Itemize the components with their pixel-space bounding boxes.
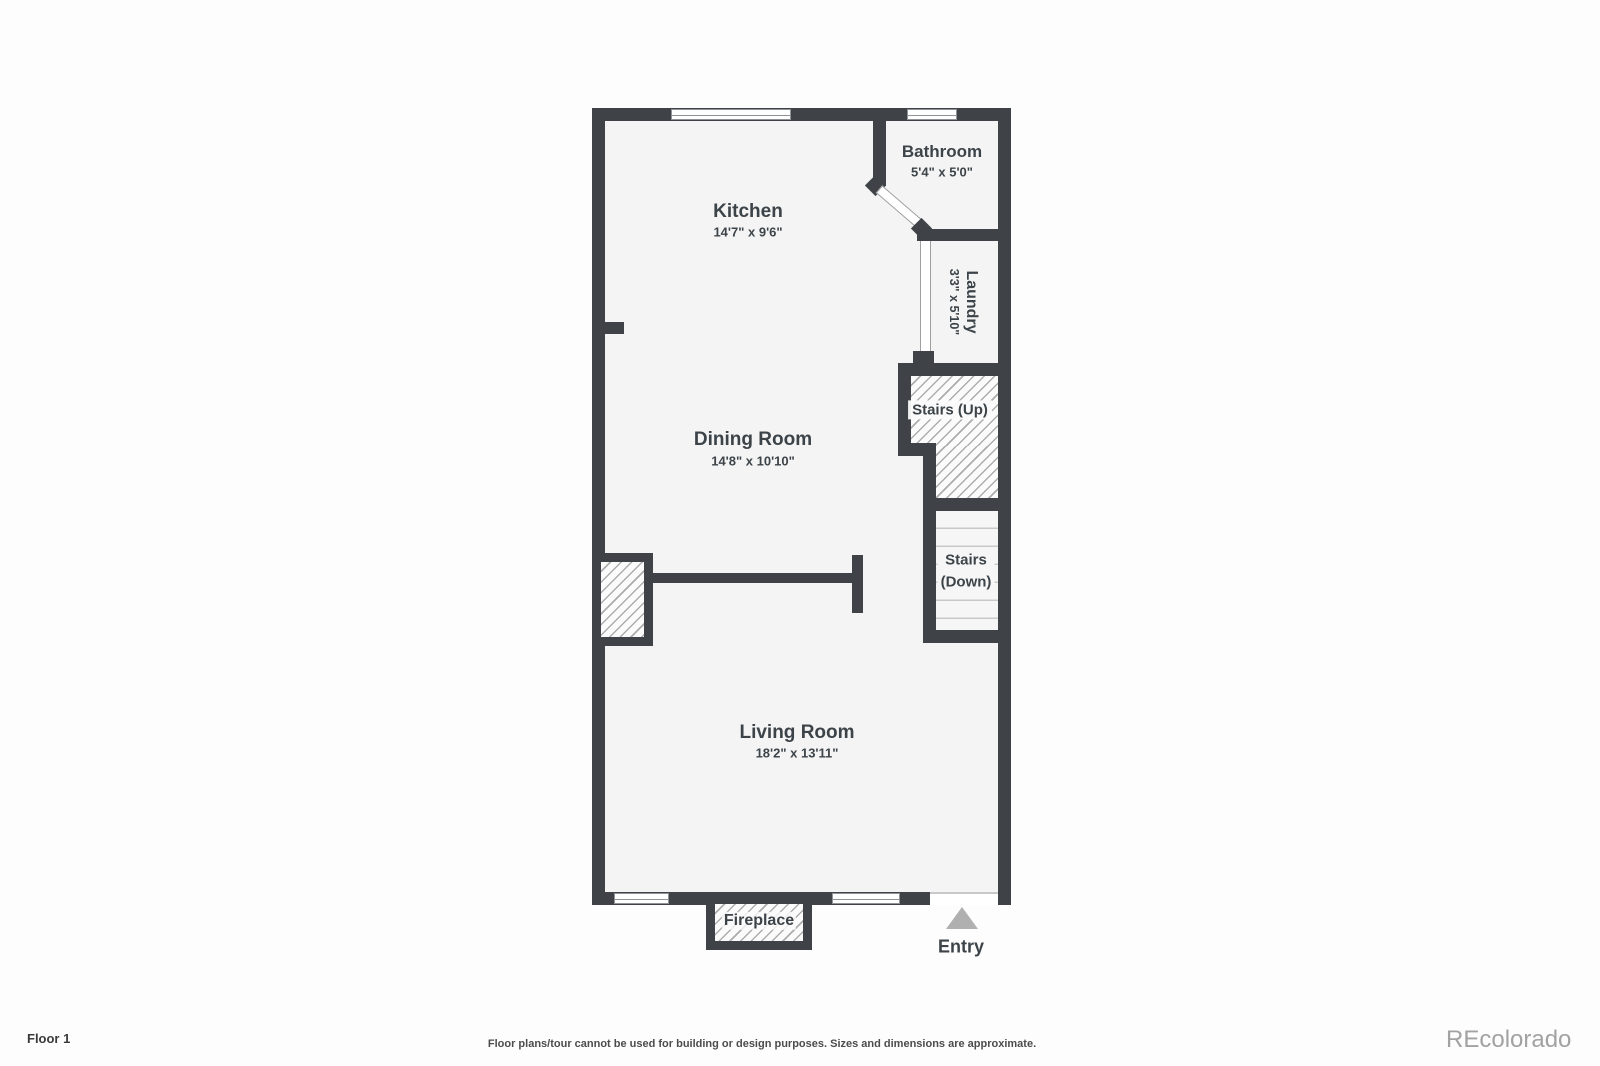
living-window-left [614, 893, 669, 904]
bathroom-dims: 5'4" x 5'0" [911, 166, 973, 181]
living-room-dims: 18'2" x 13'11" [756, 747, 839, 762]
bathroom-label: Bathroom [902, 142, 982, 162]
kitchen-dims: 14'7" x 9'6" [713, 226, 782, 241]
bathroom-window [907, 109, 957, 120]
floor-plan-page: Kitchen 14'7" x 9'6" Bathroom 5'4" x 5'0… [0, 0, 1600, 1066]
laundry-label: Laundry [961, 269, 981, 335]
half-wall [652, 573, 853, 583]
kitchen-window [671, 109, 791, 120]
recolorado-watermark: REcolorado [1446, 1026, 1571, 1054]
outer-wall-left [592, 108, 605, 905]
floor-indicator: Floor 1 [27, 1031, 70, 1046]
disclaimer-text: Floor plans/tour cannot be used for buil… [488, 1038, 1036, 1050]
laundry-label-group: Laundry 3'3" x 5'10" [945, 269, 981, 335]
laundry-door [920, 241, 931, 351]
chimney-box-hatch [601, 562, 644, 637]
stairs-up-hatch-lower [936, 446, 998, 498]
stairs-down-left-wall [923, 511, 936, 643]
stairs-up-label: Stairs (Up) [908, 400, 992, 419]
dining-room-label: Dining Room [694, 429, 812, 451]
stairs-divider-wall [923, 498, 1011, 511]
stairs-down-label: Stairs (Down) [938, 548, 995, 594]
fireplace-label: Fireplace [722, 912, 796, 930]
bathroom-bottom-wall [917, 229, 1011, 241]
laundry-bottom-wall [898, 363, 1011, 376]
laundry-dims: 3'3" x 5'10" [945, 269, 961, 335]
dining-room-dims: 14'8" x 10'10" [711, 455, 795, 470]
stairs-down-label-line1: Stairs [941, 549, 992, 571]
living-room-label: Living Room [739, 722, 854, 744]
entry-label: Entry [938, 937, 984, 958]
stairs-down-bottom-wall [923, 630, 1011, 643]
entry-arrow-icon [946, 907, 978, 929]
half-wall-end-post [852, 555, 863, 613]
entry-opening [930, 892, 998, 905]
stairs-down-label-line2: (Down) [941, 571, 992, 593]
living-window-right [832, 893, 900, 904]
kitchen-stub-wall [598, 322, 624, 334]
kitchen-label: Kitchen [713, 201, 783, 223]
